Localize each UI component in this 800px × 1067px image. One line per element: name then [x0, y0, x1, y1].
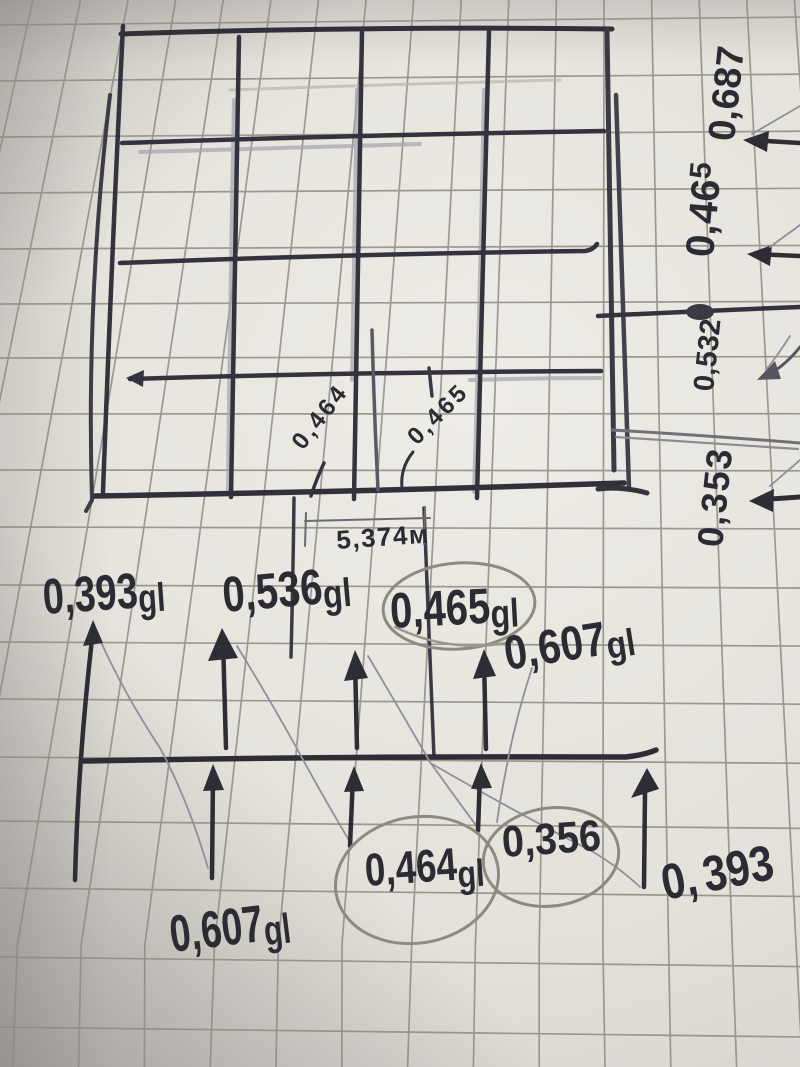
- svg-text:0,353: 0,353: [689, 445, 740, 549]
- svg-text:0,465: 0,465: [677, 161, 730, 259]
- svg-text:0,536gl: 0,536gl: [220, 556, 353, 626]
- svg-text:5,374м: 5,374м: [335, 519, 430, 555]
- svg-text:0,687: 0,687: [701, 44, 753, 143]
- svg-text:0,356: 0,356: [500, 810, 602, 866]
- svg-text:0,607gl: 0,607gl: [500, 608, 638, 683]
- svg-text:0,464: 0,464: [286, 379, 353, 455]
- svg-text:0,607gl: 0,607gl: [166, 891, 293, 966]
- svg-text:0,393: 0,393: [656, 834, 778, 911]
- svg-text:0,393gl: 0,393gl: [41, 562, 167, 628]
- svg-text:0,532: 0,532: [688, 317, 727, 393]
